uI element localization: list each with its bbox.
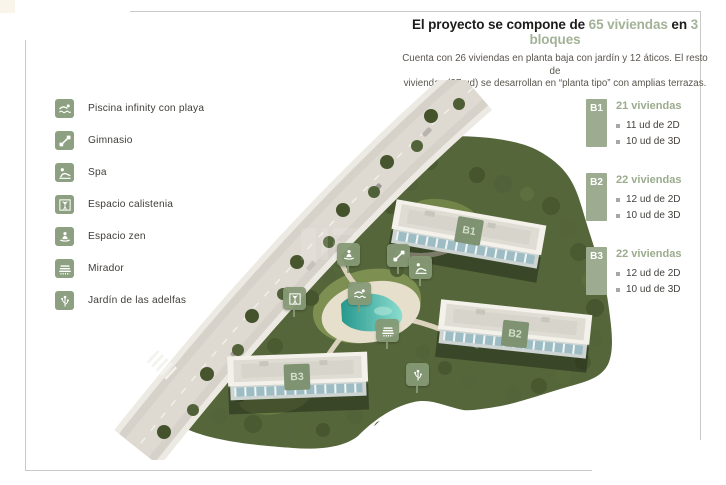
title-units-highlight: 65 viviendas — [589, 17, 668, 32]
pool-icon — [55, 99, 74, 118]
map-marker-pool — [348, 282, 371, 305]
block-b3-header: 22 viviendas — [616, 248, 681, 260]
legend-label: Spa — [88, 167, 107, 178]
site-plan-image: B1 B2 B3 — [115, 80, 655, 460]
bullet-icon — [616, 198, 620, 202]
block-b2-item: 10 ud de 3D — [616, 208, 681, 224]
map-marker-zen — [337, 243, 360, 266]
map-marker-viewpoint — [376, 319, 399, 342]
map-marker-garden — [406, 363, 429, 386]
block-b3-item: 10 ud de 3D — [616, 282, 681, 298]
block-b1-item: 11 ud de 2D — [616, 118, 681, 134]
corner-swatch — [0, 0, 15, 13]
page-title: El proyecto se compone de 65 viviendas e… — [398, 17, 712, 47]
brochure-page: El proyecto se compone de 65 viviendas e… — [0, 0, 726, 485]
bullet-icon — [616, 140, 620, 144]
title-prefix: El proyecto se compone de — [412, 17, 589, 32]
frame-line-bottom — [25, 470, 592, 471]
map-marker-spa — [409, 256, 432, 279]
frame-line-left — [25, 40, 26, 470]
viewpoint-icon — [55, 259, 74, 278]
block-b3-item: 12 ud de 2D — [616, 266, 681, 282]
building-label-b1: B1 — [454, 216, 484, 246]
spa-icon — [55, 163, 74, 182]
bullet-icon — [616, 288, 620, 292]
site-plan-render — [115, 80, 655, 460]
bullet-icon — [616, 214, 620, 218]
block-b2-header: 22 viviendas — [616, 174, 681, 186]
map-marker-gym — [387, 244, 410, 267]
block-b1-header: 21 viviendas — [616, 100, 681, 112]
gym-icon — [55, 131, 74, 150]
calisthenics-icon — [55, 195, 74, 214]
bullet-icon — [616, 272, 620, 276]
title-connector: en — [668, 17, 691, 32]
zen-icon — [55, 227, 74, 246]
block-b2-item: 12 ud de 2D — [616, 192, 681, 208]
block-b1-badge: B1 — [586, 99, 607, 147]
block-b2: B2 22 viviendas 12 ud de 2D 10 ud de 3D — [586, 173, 716, 224]
block-b2-badge: B2 — [586, 173, 607, 221]
block-b3-badge: B3 — [586, 247, 607, 295]
blocks-panel: B1 21 viviendas 11 ud de 2D 10 ud de 3D … — [586, 99, 716, 321]
building-label-b3: B3 — [284, 364, 311, 391]
frame-line-top — [130, 11, 701, 12]
block-b1-item: 10 ud de 3D — [616, 134, 681, 150]
block-b1: B1 21 viviendas 11 ud de 2D 10 ud de 3D — [586, 99, 716, 150]
bullet-icon — [616, 124, 620, 128]
map-marker-calisthenics — [283, 287, 306, 310]
building-label-b2: B2 — [501, 320, 530, 349]
subtitle-line1: Cuenta con 26 viviendas en planta baja c… — [402, 53, 708, 77]
garden-icon — [55, 291, 74, 310]
block-b3: B3 22 viviendas 12 ud de 2D 10 ud de 3D — [586, 247, 716, 298]
